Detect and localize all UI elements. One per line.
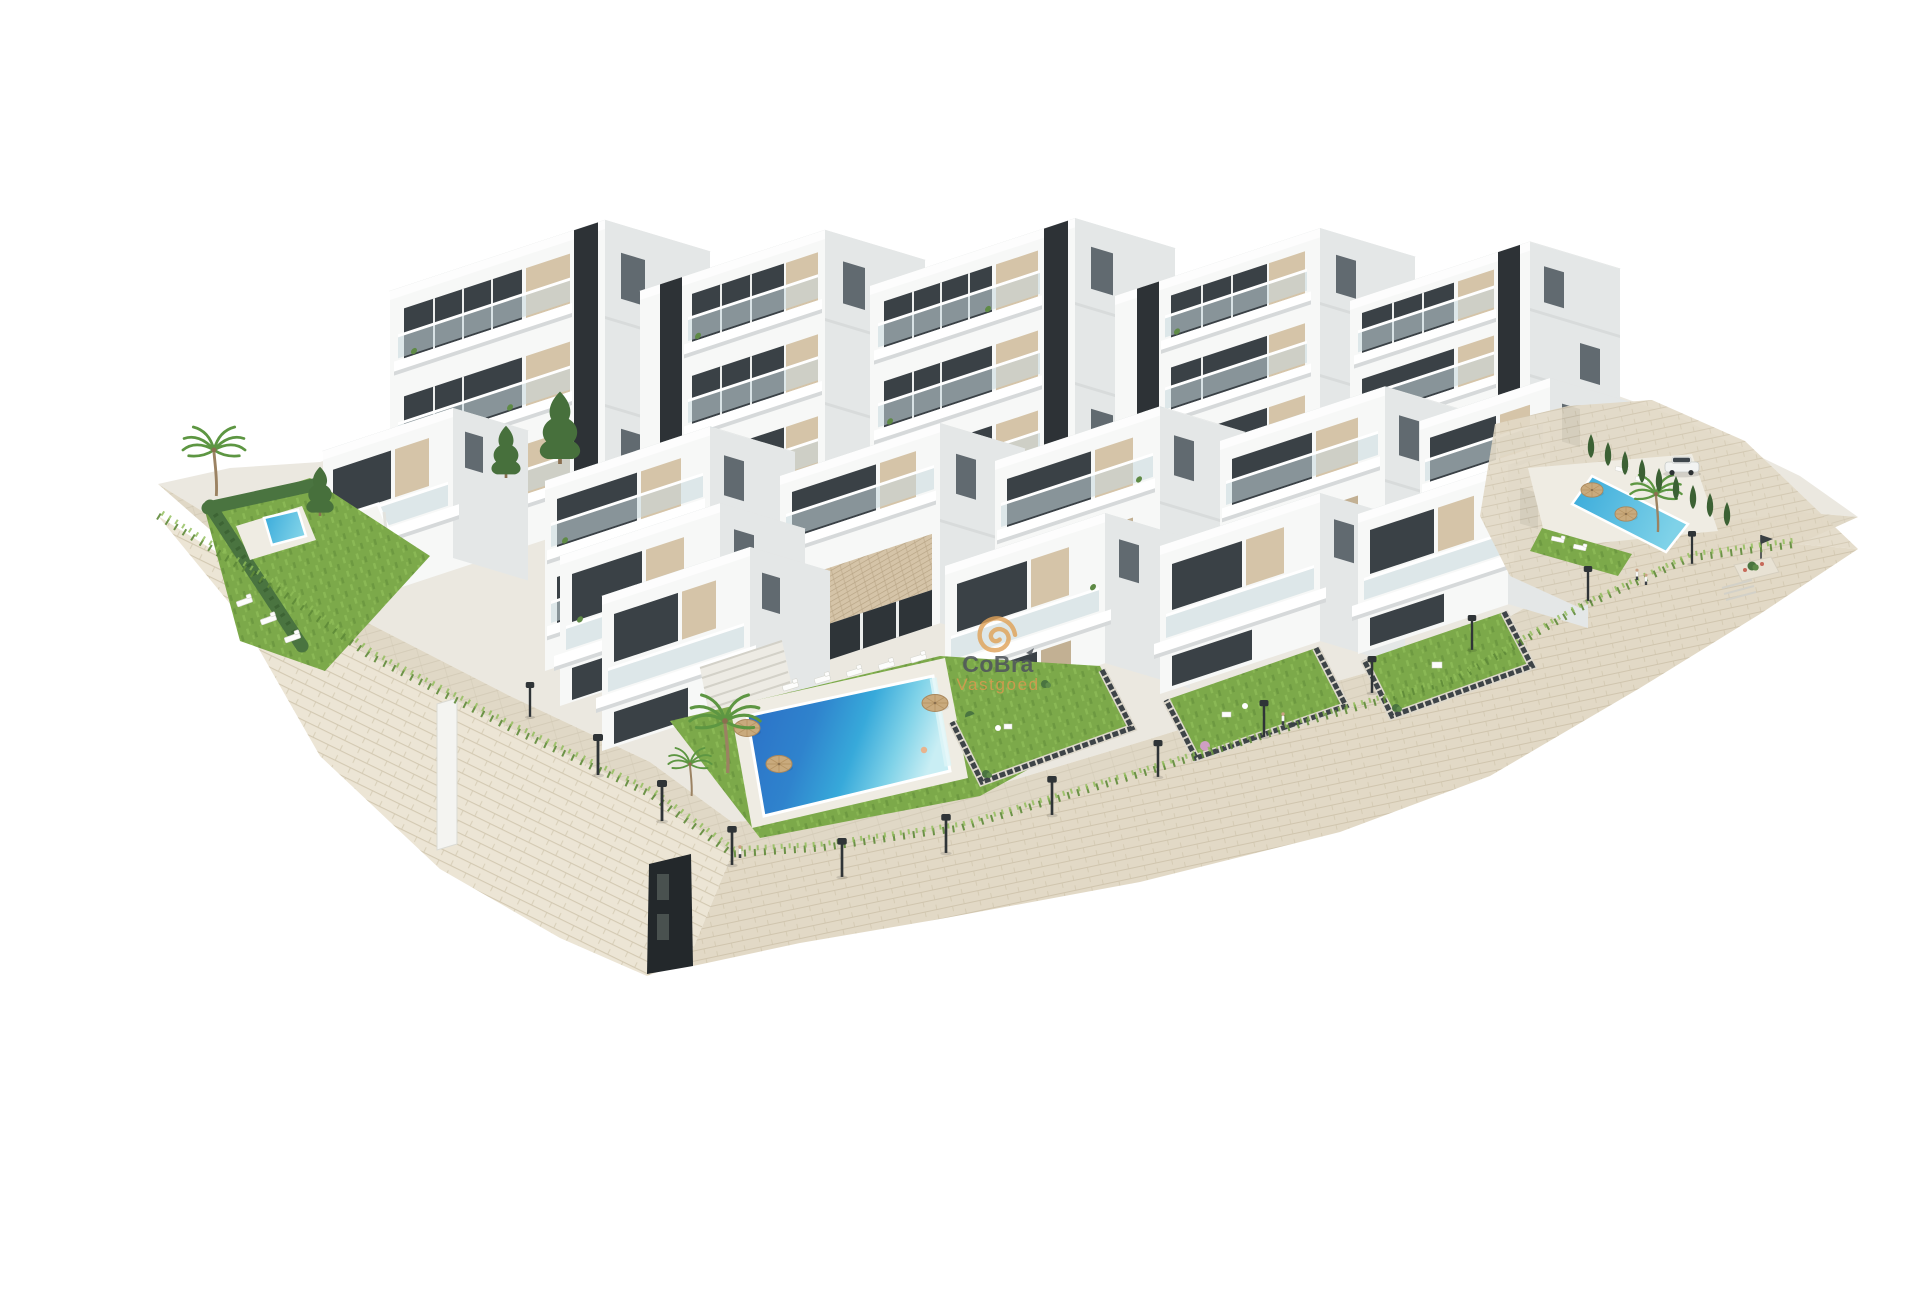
straw-umbrella [1581,483,1604,497]
watermark-brand: CoBra [962,651,1034,677]
scene-canvas: CoBra Vastgoed [40,16,1920,1296]
render-image: CoBra Vastgoed [40,16,1920,1296]
dog [1291,722,1298,726]
wall-gate-recess [647,854,693,974]
straw-umbrella [766,756,793,773]
straw-umbrella [922,695,949,712]
straw-umbrella [1615,507,1638,521]
swimmer [921,747,927,753]
watermark-subtitle: Vastgoed [956,675,1039,694]
wall-white-pillar [437,698,457,850]
